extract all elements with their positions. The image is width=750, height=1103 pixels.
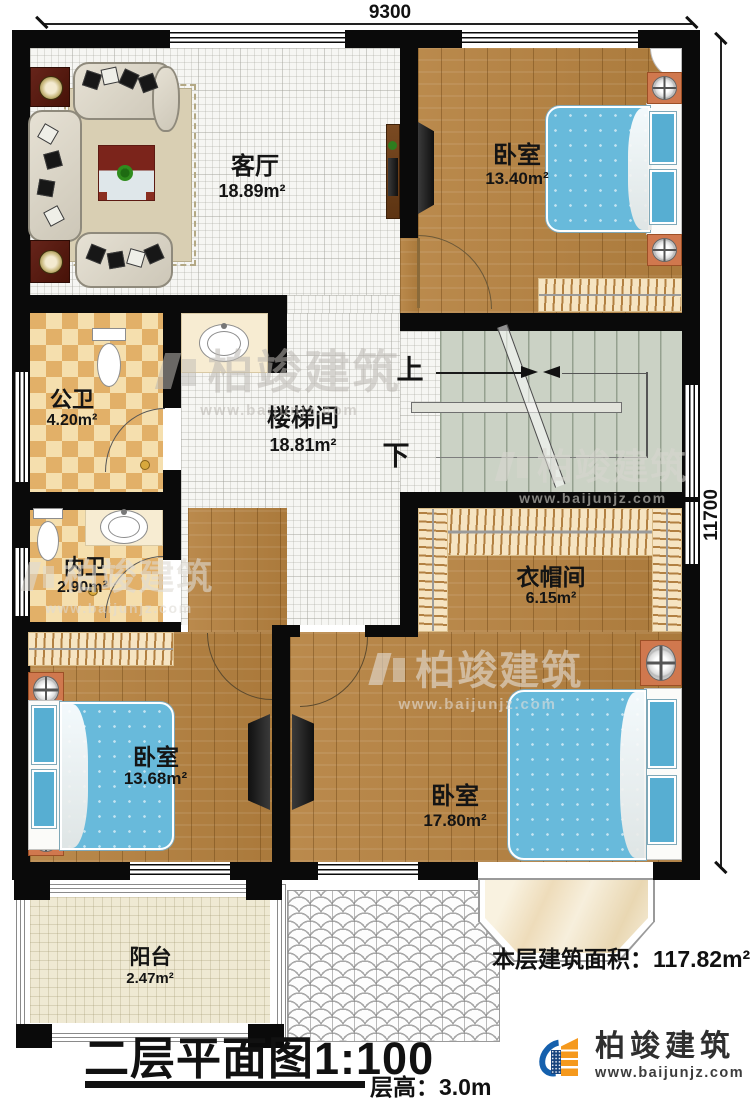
wall-bottom xyxy=(230,862,318,880)
stair-handrail xyxy=(411,402,622,413)
wall-corridor-south xyxy=(272,625,300,637)
wall-living-south xyxy=(12,295,287,313)
stair-arrow-head xyxy=(543,366,560,378)
room-area-cloakroom: 6.15m² xyxy=(506,590,596,608)
cloakroom-rack-right xyxy=(652,508,682,632)
stair-rail-line xyxy=(562,373,647,375)
sink-basin xyxy=(108,516,140,538)
sofa-chaise xyxy=(152,66,180,132)
room-area-bedroom2: 13.68m² xyxy=(108,770,203,789)
brand-logo-icon xyxy=(541,1030,587,1084)
room-label-balcony: 阳台 xyxy=(118,946,183,969)
faucet xyxy=(121,509,127,515)
room-area-bedroom3: 17.80m² xyxy=(405,812,505,831)
door-leaf-bedroom1 xyxy=(417,238,420,308)
window-stairwell xyxy=(684,385,698,497)
brand-name: 柏竣建筑 xyxy=(595,1030,744,1065)
table-lamp xyxy=(39,76,63,100)
bed1-blanket-fold xyxy=(628,108,652,230)
lamp xyxy=(646,645,676,680)
wall-alcove-right xyxy=(268,313,287,373)
brand-logo: 柏竣建筑 www.baijunjz.com xyxy=(541,1030,744,1084)
room-area-stairwell: 18.81m² xyxy=(253,436,353,456)
stair-rail-line xyxy=(646,372,648,458)
wall-bottom xyxy=(653,862,700,880)
toilet-tank xyxy=(33,508,63,519)
nightstand xyxy=(647,72,682,104)
window-bedroom3 xyxy=(318,864,418,878)
faucet xyxy=(221,323,227,329)
wall-corridor-south xyxy=(365,625,418,637)
wall-private-bath-right xyxy=(163,510,181,560)
wall-bottom xyxy=(12,862,130,880)
floor-area-label: 本层建筑面积： xyxy=(492,946,653,972)
window-bedroom1 xyxy=(462,32,638,46)
floor-area-value: 117.82m² xyxy=(653,946,750,972)
tv-bedroom2 xyxy=(248,714,270,810)
room-label-bedroom1: 卧室 xyxy=(467,143,567,169)
room-area-living: 18.89m² xyxy=(197,182,307,202)
floor-height-value: 3.0m xyxy=(439,1074,491,1100)
dimension-width: 9300 xyxy=(350,2,430,24)
wall-bedroom2-bedroom3 xyxy=(272,637,290,862)
sofa-pillow xyxy=(101,67,120,86)
tv-bedroom1 xyxy=(418,122,434,214)
sofa-pillow xyxy=(37,179,56,198)
brand-url: www.baijunjz.com xyxy=(595,1065,744,1081)
floor-hall-gap xyxy=(287,295,400,313)
wall-stairwell-south xyxy=(400,492,700,508)
bed2-pillow xyxy=(32,706,56,764)
wall-living-bedroom1 xyxy=(400,48,418,238)
title-underline xyxy=(85,1081,365,1088)
plant-small xyxy=(388,141,397,150)
bed2-blanket-fold xyxy=(62,704,88,848)
room-area-bedroom1: 13.40m² xyxy=(462,170,572,189)
plant xyxy=(112,160,138,186)
room-label-cloakroom: 衣帽间 xyxy=(501,565,601,590)
cloakroom-rack-top xyxy=(418,508,682,556)
room-area-private-bath: 2.90m² xyxy=(45,579,120,597)
bed3-blanket-fold xyxy=(620,692,646,858)
room-area-balcony: 2.47m² xyxy=(110,971,190,988)
floor-corridor-wood xyxy=(188,508,287,632)
window-public-bath xyxy=(14,372,28,482)
wall-bedroom1-south xyxy=(400,313,700,331)
wall-hall-cloakroom xyxy=(400,508,418,625)
floor-area-note: 本层建筑面积：117.82m² xyxy=(492,940,750,974)
floor-plan: 上 下 客厅 18.89m² 卧室 13.40m² 公卫 4.20m² 楼梯间 … xyxy=(0,0,750,1103)
stair-arrow-head xyxy=(521,366,538,378)
roof-tiles xyxy=(287,890,500,1042)
stair-arrow-line xyxy=(436,372,524,374)
coffee-table-corner xyxy=(146,192,154,200)
stair-rail-line xyxy=(436,457,647,458)
wall-private-bath-south xyxy=(12,622,181,632)
sink-basin xyxy=(207,331,241,356)
window-private-bath xyxy=(14,548,28,616)
bed2-pillow xyxy=(32,770,56,828)
wall-bottom xyxy=(418,862,478,880)
lamp xyxy=(652,238,677,262)
dimension-line-right xyxy=(720,39,722,869)
balcony-post xyxy=(16,1024,52,1048)
window-living xyxy=(170,32,345,46)
floor-height-note: 层高：3.0m xyxy=(370,1068,491,1102)
room-label-public-bath: 公卫 xyxy=(42,388,102,412)
wall-public-bath-right xyxy=(163,470,181,492)
plan-title-text: 二层平面图 xyxy=(84,1033,314,1084)
table-lamp xyxy=(39,250,63,274)
stair-up-label: 上 xyxy=(392,356,428,386)
bed1-pillow xyxy=(650,112,676,164)
floor-bedroom1-door-gap xyxy=(400,238,418,313)
bed1-pillow xyxy=(650,170,676,224)
wall-public-bath-right xyxy=(163,313,181,408)
wall-top xyxy=(345,30,462,48)
room-label-living: 客厅 xyxy=(205,154,305,180)
sofa-pillow xyxy=(107,251,126,270)
balcony-post xyxy=(14,878,50,900)
tv-living xyxy=(388,158,398,196)
wall-top xyxy=(12,30,170,48)
toilet-bowl xyxy=(37,521,59,561)
balcony-post xyxy=(246,878,282,900)
window-balcony-door xyxy=(130,864,230,878)
nightstand xyxy=(640,640,682,686)
lamp xyxy=(652,76,677,100)
bed3-pillow xyxy=(648,776,676,844)
wardrobe-bedroom2 xyxy=(28,632,174,666)
nightstand xyxy=(647,234,682,266)
room-area-public-bath: 4.20m² xyxy=(32,412,112,430)
cloakroom-rack-left xyxy=(418,508,448,632)
floor-height-label: 层高： xyxy=(370,1074,439,1100)
window-cloakroom xyxy=(684,502,698,564)
tv-bedroom3 xyxy=(292,714,314,810)
room-label-bedroom3: 卧室 xyxy=(415,784,495,810)
stair-down-label: 下 xyxy=(378,442,414,472)
dimension-height: 11700 xyxy=(701,470,721,560)
toilet-tank xyxy=(92,328,126,341)
room-label-private-bath: 内卫 xyxy=(55,556,115,579)
bed3-pillow xyxy=(648,700,676,768)
toilet-bowl xyxy=(97,343,121,387)
room-label-stairwell: 楼梯间 xyxy=(253,406,353,432)
coffee-table-corner xyxy=(99,192,107,200)
wardrobe-bedroom1 xyxy=(538,278,682,312)
room-label-bedroom2: 卧室 xyxy=(120,745,192,770)
